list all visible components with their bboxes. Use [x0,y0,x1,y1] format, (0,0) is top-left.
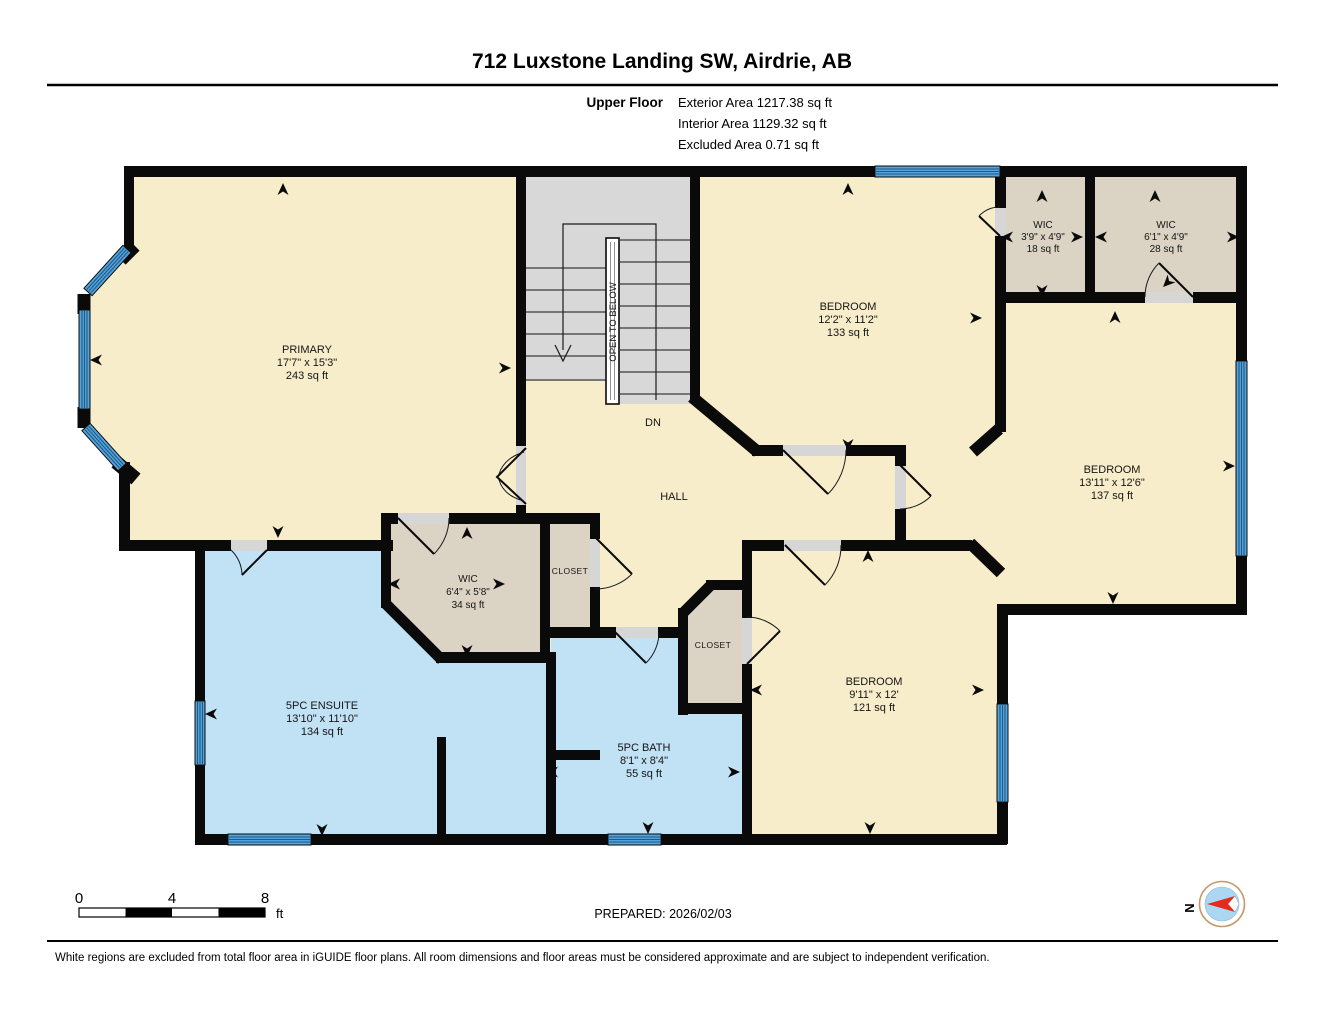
compass: N [1182,882,1245,927]
window-east [1236,361,1247,556]
svg-text:137 sq ft: 137 sq ft [1091,490,1133,502]
label-closet-2: CLOSET [695,640,731,650]
svg-text:55 sq ft: 55 sq ft [626,768,662,780]
svg-text:17'7" x 15'3": 17'7" x 15'3" [277,357,337,369]
window-bath-bottom [608,834,661,845]
svg-text:3'9" x 4'9": 3'9" x 4'9" [1021,232,1065,243]
label-closet-1: CLOSET [552,566,588,576]
scale-tick-0: 0 [75,890,83,907]
svg-text:28 sq ft: 28 sq ft [1150,244,1183,255]
window-bedroom-lower [997,704,1008,802]
svg-text:WIC: WIC [1033,220,1052,231]
svg-text:PRIMARY: PRIMARY [282,344,333,356]
svg-text:133 sq ft: 133 sq ft [827,327,869,339]
svg-text:WIC: WIC [458,574,477,585]
compass-north-label: N [1182,903,1197,912]
scale-bar: 0 4 8 ft [75,890,284,921]
window-top [875,166,1000,177]
disclaimer: White regions are excluded from total fl… [55,952,990,964]
scale-tick-4: 4 [168,890,176,907]
svg-text:134 sq ft: 134 sq ft [301,726,343,738]
svg-text:6'1" x 4'9": 6'1" x 4'9" [1144,232,1188,243]
svg-text:6'4" x 5'8": 6'4" x 5'8" [446,587,490,598]
svg-text:WIC: WIC [1156,220,1175,231]
svg-text:8'1" x 8'4": 8'1" x 8'4" [620,755,668,767]
svg-text:5PC BATH: 5PC BATH [618,742,671,754]
label-bedroom-lower: BEDROOM 9'11" x 12' 121 sq ft [846,676,903,714]
page-title: 712 Luxstone Landing SW, Airdrie, AB [472,50,852,73]
label-dn: DN [645,417,661,429]
svg-text:BEDROOM: BEDROOM [846,676,903,688]
scale-unit: ft [276,906,284,921]
prepared-date: PREPARED: 2026/02/03 [594,907,731,921]
floorplan-page: 712 Luxstone Landing SW, Airdrie, AB Upp… [0,0,1325,1024]
svg-text:9'11" x 12': 9'11" x 12' [849,689,899,701]
svg-text:BEDROOM: BEDROOM [820,301,877,313]
label-hall: HALL [660,491,688,503]
svg-text:12'2" x 11'2": 12'2" x 11'2" [818,314,878,326]
window-bay-left [79,310,90,409]
scale-tick-8: 8 [261,890,269,907]
excluded-area: Excluded Area 0.71 sq ft [678,137,819,152]
scale-bar-segment [219,908,266,917]
svg-text:18 sq ft: 18 sq ft [1027,244,1060,255]
label-open-to-below: OPEN TO BELOW [608,282,619,361]
hall-under-stairs [521,381,606,404]
exterior-area: Exterior Area 1217.38 sq ft [678,95,832,110]
interior-area: Interior Area 1129.32 sq ft [678,116,827,131]
svg-text:13'10" x 11'10": 13'10" x 11'10" [286,713,358,725]
svg-text:34 sq ft: 34 sq ft [452,600,485,611]
scale-bar-segment [126,908,173,917]
svg-text:243 sq ft: 243 sq ft [286,370,328,382]
floor-name: Upper Floor [587,95,664,110]
window-ensuite-west [195,701,205,765]
svg-text:121 sq ft: 121 sq ft [853,702,895,714]
svg-text:13'11" x 12'6": 13'11" x 12'6" [1079,477,1145,489]
svg-text:5PC ENSUITE: 5PC ENSUITE [286,700,358,712]
label-bedroom-top: BEDROOM 12'2" x 11'2" 133 sq ft [818,301,878,339]
svg-text:BEDROOM: BEDROOM [1084,464,1141,476]
window-ensuite-bottom [228,834,311,845]
floor-plan: PRIMARY 17'7" x 15'3" 243 sq ft BEDROOM … [79,166,1247,845]
